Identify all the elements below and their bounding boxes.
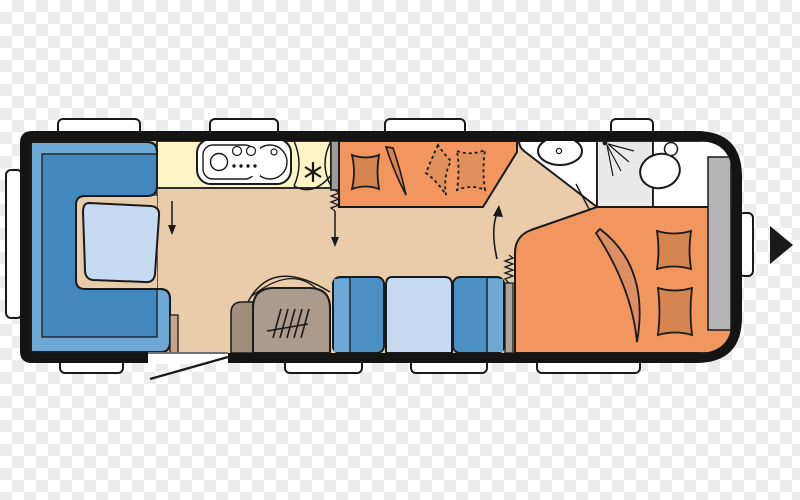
upper-bunk-pillow-dashed	[457, 150, 485, 190]
sink-drain-icon	[271, 149, 277, 155]
front-lounge	[31, 142, 178, 353]
door-side-divider	[170, 315, 178, 353]
bed-pillow-bottom	[658, 288, 692, 335]
kitchen-divider	[331, 141, 339, 190]
lounge-table	[83, 203, 159, 282]
rear-bed	[515, 207, 731, 353]
door-opening	[148, 352, 228, 364]
toilet-flush-icon	[665, 143, 678, 156]
caravan-floorplan-drawing	[0, 0, 800, 500]
burner-icon	[211, 154, 228, 171]
transparency-checkerboard	[0, 0, 800, 500]
travel-direction-arrow-icon	[770, 226, 793, 264]
bed-side-divider	[505, 283, 513, 353]
caravan-interior	[30, 137, 732, 353]
entrance-door	[148, 352, 228, 379]
wardrobe	[708, 157, 731, 330]
kitchen	[157, 139, 339, 190]
dinette-table	[386, 277, 452, 353]
bed-pillow-top	[657, 231, 691, 269]
lower-bunk-pillow	[352, 155, 379, 189]
cooktop-sink-unit	[197, 139, 291, 184]
front-window-tab	[6, 170, 22, 318]
